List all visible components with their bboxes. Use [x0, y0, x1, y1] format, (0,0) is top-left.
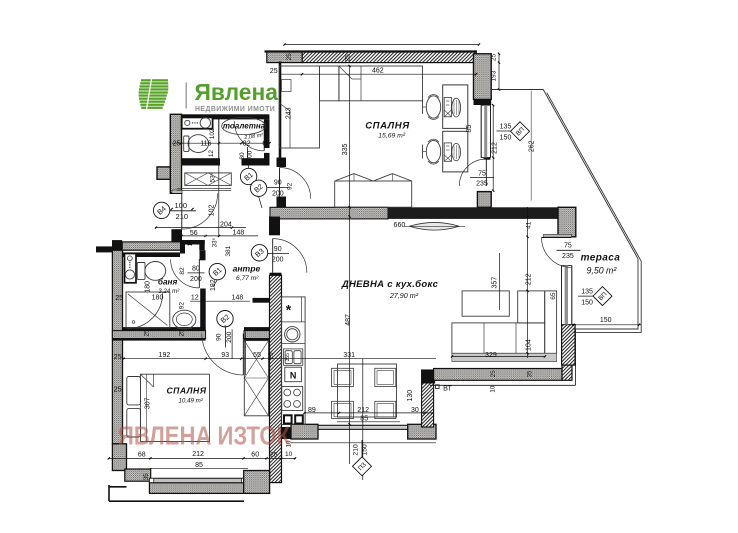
svg-text:25: 25 [115, 295, 123, 302]
svg-text:92: 92 [287, 182, 294, 190]
svg-text:ЯВЛЕНА ИЗТОК: ЯВЛЕНА ИЗТОК [118, 421, 290, 451]
svg-text:90: 90 [274, 246, 282, 253]
svg-text:90: 90 [215, 333, 222, 341]
svg-text:баня: баня [158, 276, 178, 286]
svg-text:СПАЛНЯ: СПАЛНЯ [166, 385, 206, 395]
svg-text:243: 243 [285, 107, 292, 119]
svg-text:150: 150 [500, 135, 512, 142]
svg-text:тоалетна: тоалетна [223, 122, 266, 131]
svg-text:148: 148 [232, 295, 244, 302]
svg-text:212: 212 [192, 451, 204, 458]
svg-text:100: 100 [175, 201, 188, 210]
svg-text:10,49 m²: 10,49 m² [178, 397, 203, 404]
svg-text:357: 357 [492, 277, 499, 289]
svg-text:33⁵: 33⁵ [211, 237, 218, 247]
svg-text:116: 116 [200, 141, 211, 148]
svg-text:235: 235 [562, 253, 574, 260]
svg-text:56: 56 [190, 230, 198, 237]
svg-text:335: 335 [342, 143, 349, 155]
svg-text:30: 30 [411, 407, 419, 414]
svg-text:90: 90 [274, 180, 282, 187]
svg-text:25: 25 [344, 54, 351, 62]
svg-text:60: 60 [251, 451, 259, 458]
svg-text:ДНЕВНА с кух.бокс: ДНЕВНА с кух.бокс [341, 279, 439, 290]
svg-text:25: 25 [270, 451, 278, 458]
svg-text:антре: антре [233, 263, 261, 273]
svg-text:СПАЛНЯ: СПАЛНЯ [365, 120, 410, 131]
svg-text:12: 12 [187, 239, 194, 246]
svg-text:210: 210 [352, 444, 359, 456]
svg-text:ВТ: ВТ [443, 384, 452, 393]
svg-text:12: 12 [191, 295, 199, 302]
svg-text:130: 130 [407, 390, 414, 402]
svg-text:104: 104 [525, 339, 532, 351]
svg-text:тераса: тераса [581, 253, 621, 264]
svg-text:25: 25 [173, 141, 181, 148]
svg-text:150: 150 [362, 444, 369, 456]
svg-text:12: 12 [208, 150, 215, 157]
svg-text:329: 329 [485, 352, 497, 359]
svg-text:102: 102 [209, 204, 216, 216]
svg-text:660: 660 [394, 222, 406, 229]
svg-text:193: 193 [491, 70, 498, 81]
svg-text:41: 41 [526, 221, 533, 229]
svg-text:25: 25 [268, 352, 275, 359]
svg-text:10: 10 [489, 385, 496, 392]
svg-text:212: 212 [525, 273, 532, 285]
svg-text:80: 80 [192, 266, 200, 273]
svg-text:25: 25 [144, 329, 151, 336]
svg-text:НЕДВИЖИМИ ИМОТИ: НЕДВИЖИМИ ИМОТИ [195, 106, 275, 113]
svg-text:487: 487 [345, 314, 352, 326]
svg-text:212: 212 [357, 407, 369, 414]
svg-text:85: 85 [195, 462, 203, 469]
svg-text:15,69 m²: 15,69 m² [378, 133, 406, 140]
svg-text:80: 80 [239, 152, 246, 160]
svg-text:200: 200 [272, 191, 284, 198]
svg-text:200: 200 [226, 331, 233, 343]
svg-text:53⁵: 53⁵ [210, 172, 217, 182]
svg-text:192: 192 [159, 352, 171, 359]
svg-text:25: 25 [114, 354, 122, 361]
svg-text:262: 262 [529, 140, 536, 152]
svg-text:35: 35 [527, 370, 534, 377]
svg-text:204: 204 [220, 222, 232, 229]
svg-text:381: 381 [225, 245, 232, 256]
svg-text:212: 212 [491, 142, 498, 154]
svg-text:65: 65 [550, 292, 557, 300]
svg-text:3,24 m²: 3,24 m² [158, 288, 180, 295]
svg-text:85: 85 [360, 416, 368, 423]
svg-text:135: 135 [581, 288, 593, 295]
svg-text:75: 75 [478, 170, 486, 177]
svg-text:331: 331 [343, 352, 355, 359]
svg-text:75: 75 [564, 243, 572, 250]
svg-text:N: N [290, 370, 297, 380]
svg-text:180: 180 [152, 295, 164, 302]
svg-text:27,90 m²: 27,90 m² [389, 291, 419, 300]
svg-text:82: 82 [243, 141, 251, 148]
svg-text:462: 462 [372, 67, 384, 74]
svg-text:355: 355 [285, 353, 291, 362]
svg-text:68: 68 [138, 451, 146, 458]
svg-text:102: 102 [209, 128, 216, 139]
svg-text:150: 150 [600, 317, 612, 324]
svg-text:92: 92 [179, 302, 186, 310]
svg-text:25: 25 [179, 329, 186, 336]
svg-text:307: 307 [145, 397, 152, 409]
svg-text:210: 210 [176, 212, 189, 221]
svg-text:180: 180 [145, 281, 152, 293]
svg-text:82: 82 [179, 267, 186, 275]
svg-text:25: 25 [490, 370, 497, 377]
svg-text:135: 135 [500, 124, 512, 131]
svg-text:10: 10 [285, 451, 293, 458]
svg-text:6,77 m²: 6,77 m² [236, 275, 259, 282]
svg-text:55: 55 [253, 352, 261, 359]
svg-text:148: 148 [233, 230, 245, 237]
svg-text:Явлена: Явлена [195, 79, 279, 105]
svg-text:200: 200 [272, 257, 284, 264]
svg-text:200: 200 [190, 276, 202, 283]
svg-text:6: 6 [262, 141, 266, 148]
svg-text:25: 25 [286, 53, 293, 61]
svg-text:35: 35 [143, 473, 150, 481]
svg-text:9,50 m²: 9,50 m² [586, 265, 617, 275]
svg-text:192: 192 [210, 279, 217, 291]
svg-text:235: 235 [476, 181, 488, 188]
svg-text:93: 93 [221, 352, 229, 359]
svg-text:25: 25 [491, 54, 498, 62]
svg-text:89: 89 [308, 407, 316, 414]
svg-text:*: * [286, 302, 292, 318]
svg-text:25: 25 [114, 387, 122, 394]
svg-text:150: 150 [581, 299, 593, 306]
svg-text:85: 85 [466, 125, 473, 133]
svg-text:25: 25 [270, 68, 278, 75]
